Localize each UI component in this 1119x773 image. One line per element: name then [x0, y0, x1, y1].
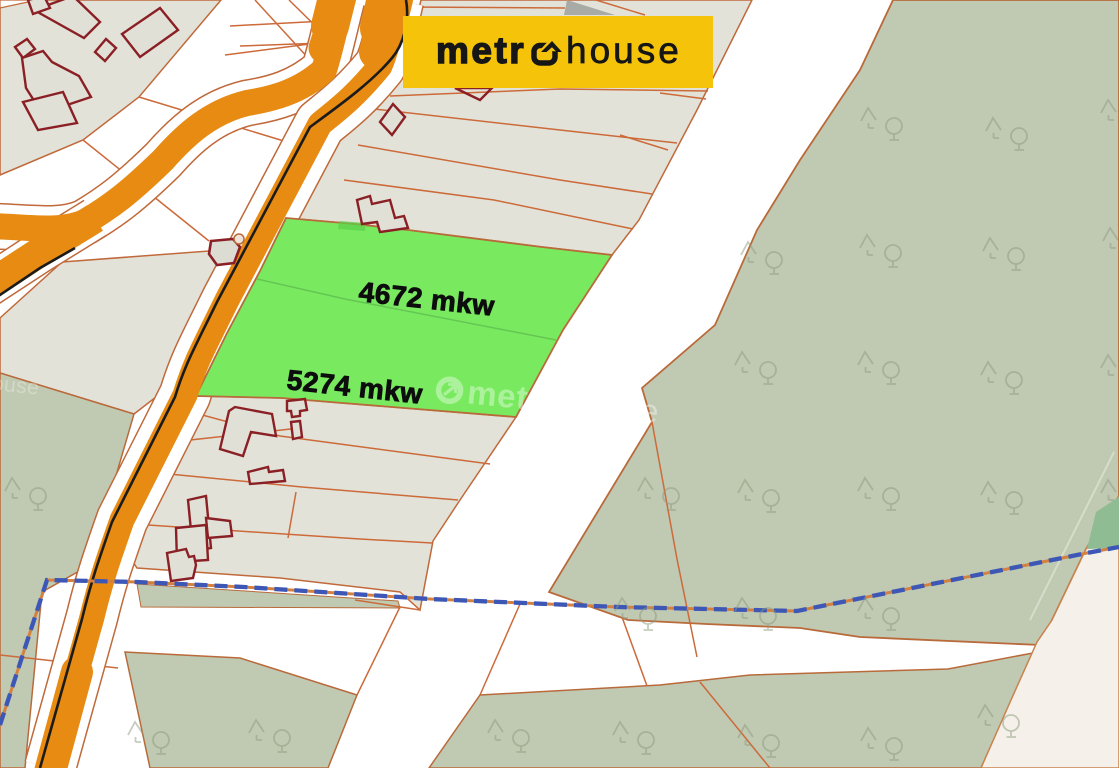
- svg-text:house: house: [566, 30, 682, 71]
- svg-text:metr: metr: [436, 30, 526, 71]
